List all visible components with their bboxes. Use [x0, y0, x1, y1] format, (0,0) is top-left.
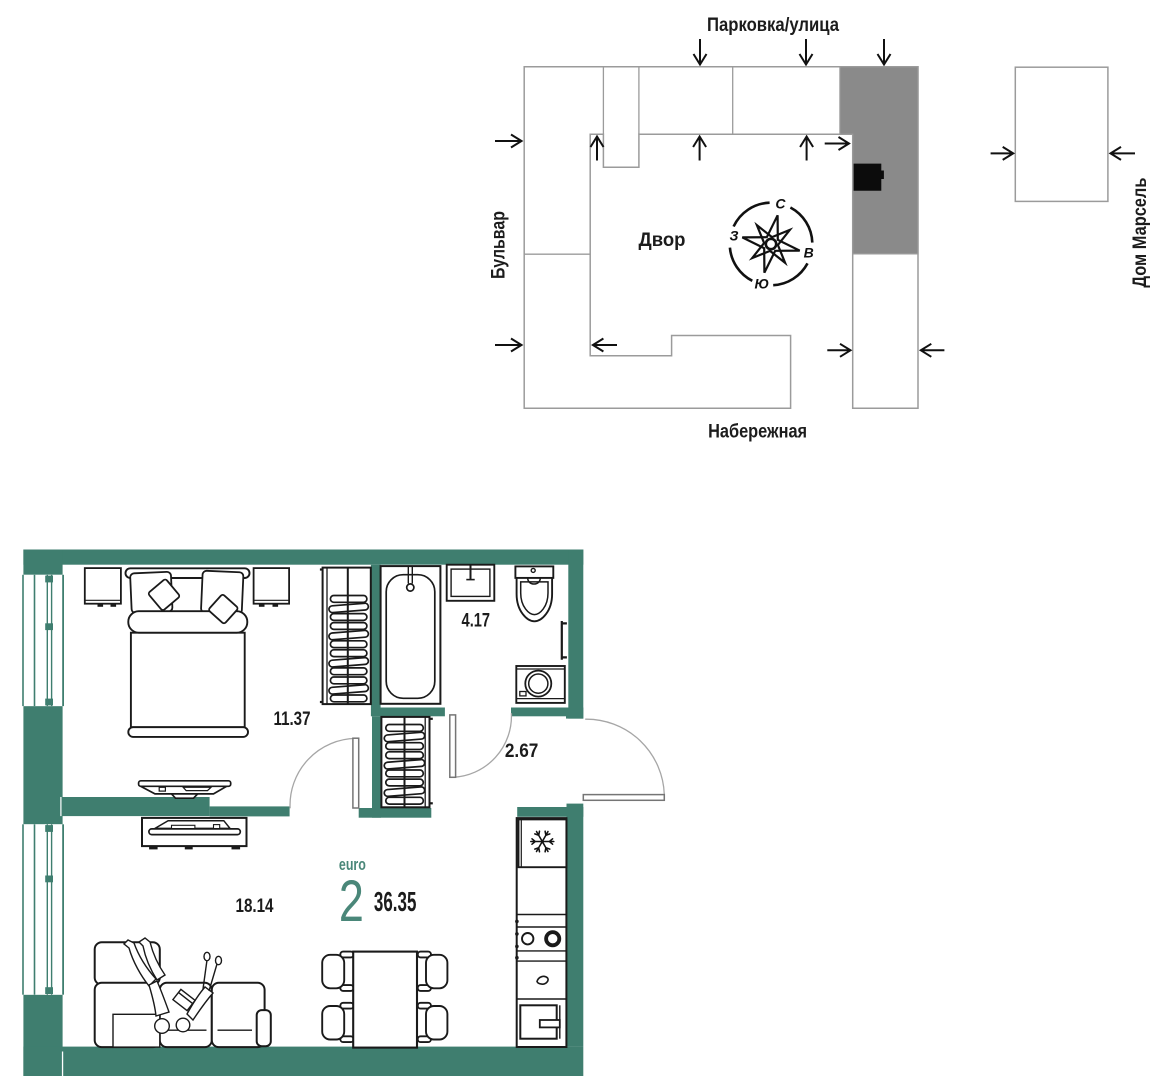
svg-text:С: С: [775, 196, 786, 212]
svg-text:Дом Марсель: Дом Марсель: [1129, 178, 1151, 288]
svg-text:2.67: 2.67: [505, 741, 539, 762]
svg-text:18.14: 18.14: [236, 896, 274, 917]
svg-text:В: В: [804, 245, 814, 261]
svg-text:36.35: 36.35: [374, 886, 417, 917]
svg-text:Двор: Двор: [639, 229, 686, 251]
svg-text:Набережная: Набережная: [708, 420, 807, 442]
svg-text:Ю: Ю: [755, 276, 770, 292]
svg-text:11.37: 11.37: [274, 709, 311, 730]
svg-text:Бульвар: Бульвар: [488, 211, 510, 279]
svg-text:З: З: [730, 228, 739, 244]
svg-text:Парковка/улица: Парковка/улица: [707, 14, 839, 36]
svg-text:2: 2: [339, 869, 364, 934]
svg-text:4.17: 4.17: [462, 610, 491, 631]
